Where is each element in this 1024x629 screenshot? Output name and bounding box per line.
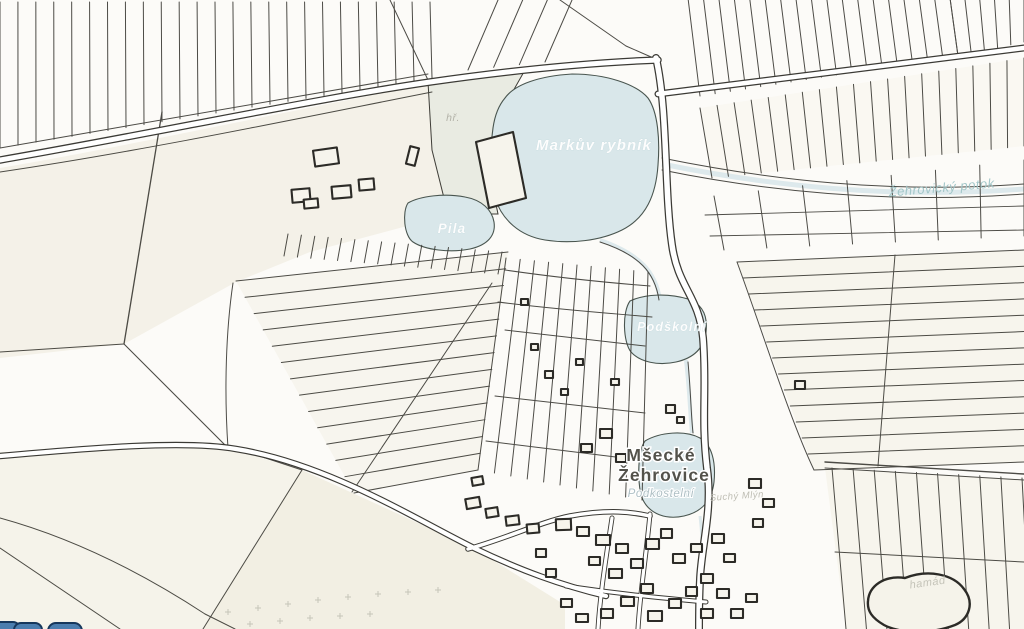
pond-podkostelni-label: Podkostelní — [628, 488, 696, 500]
pond-podskolni-label: Podškolní — [637, 320, 707, 334]
minor-place-label-1: Suchý Mlýn — [709, 489, 764, 504]
village-name-line2: Žehrovice — [618, 464, 710, 485]
logo-shape-3[interactable] — [48, 623, 82, 629]
lake-name-label: Markův rybník — [536, 137, 652, 154]
village-name-line1: Mšecké — [626, 445, 695, 465]
pond-pila-label: Pila — [438, 221, 466, 236]
map-canvas[interactable]: hř. Markův rybník Pila Podškolní Mšecké … — [0, 0, 1024, 629]
map-viewport[interactable]: hř. Markův rybník Pila Podškolní Mšecké … — [0, 0, 1024, 629]
logo-shape-2[interactable] — [14, 623, 42, 629]
playground-abbreviation-label: hř. — [446, 112, 460, 124]
